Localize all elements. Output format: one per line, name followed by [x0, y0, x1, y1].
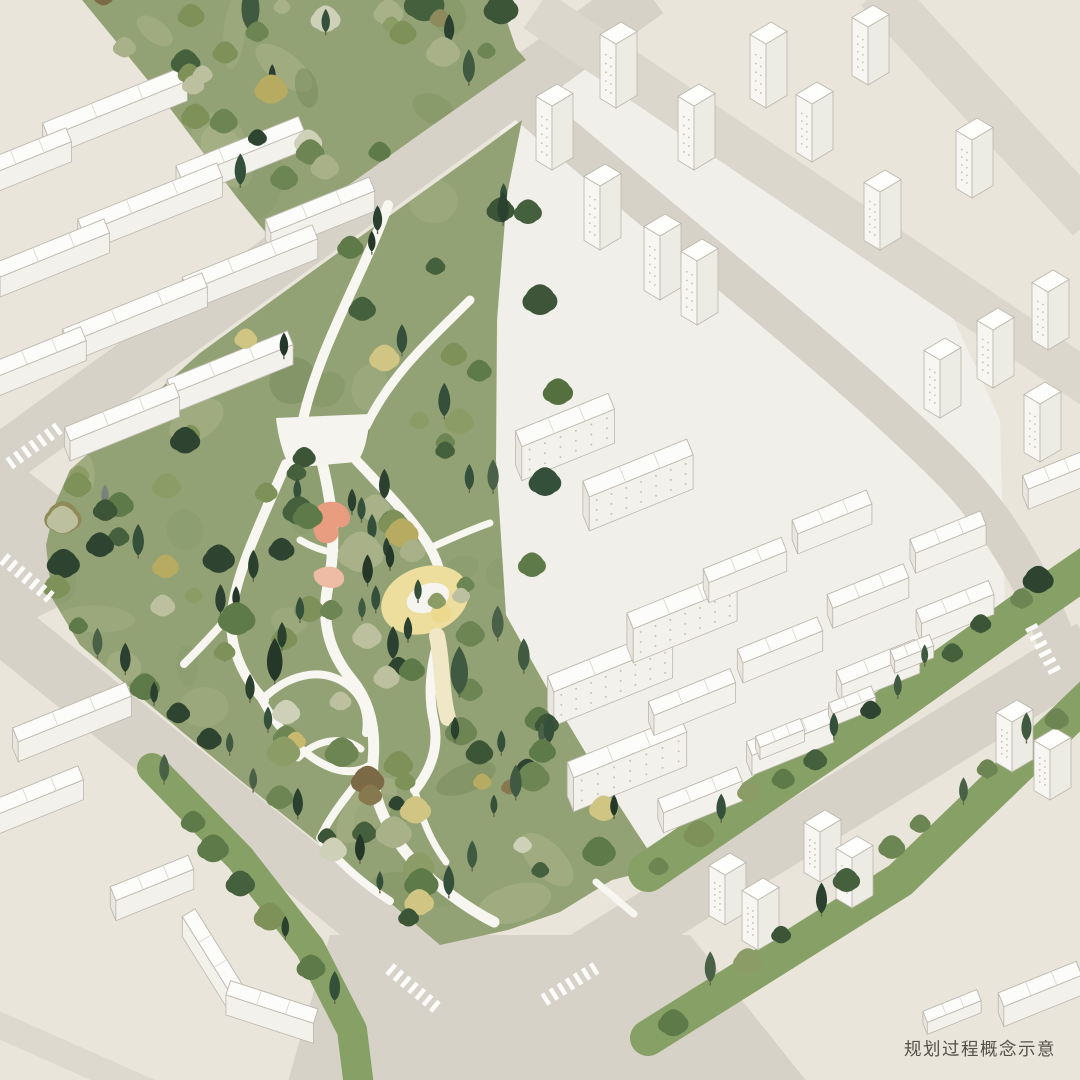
park-feature-yellow-tail [437, 636, 448, 718]
building-tower [852, 5, 889, 85]
masterplan-illustration: 规划过程概念示意 [0, 0, 1080, 1080]
building-tower [924, 338, 961, 418]
plan-svg [0, 0, 1080, 1080]
building-tower [1032, 270, 1069, 350]
building-tower [977, 308, 1014, 388]
building-tower [864, 170, 901, 250]
building-tower [804, 810, 841, 882]
building-tower [681, 239, 718, 325]
building-tower [536, 84, 573, 170]
building-tower [644, 214, 681, 300]
building-tower [750, 22, 787, 108]
plan-caption: 规划过程概念示意 [904, 1036, 1056, 1061]
building-tower [600, 22, 637, 108]
building-tower [584, 164, 621, 250]
building-tower [956, 118, 993, 198]
park-plaza [276, 414, 370, 468]
building-tower [796, 82, 833, 162]
building-tower [1024, 382, 1061, 462]
building-tower [709, 853, 746, 925]
building-tower [1034, 728, 1071, 800]
building-tower [678, 84, 715, 170]
